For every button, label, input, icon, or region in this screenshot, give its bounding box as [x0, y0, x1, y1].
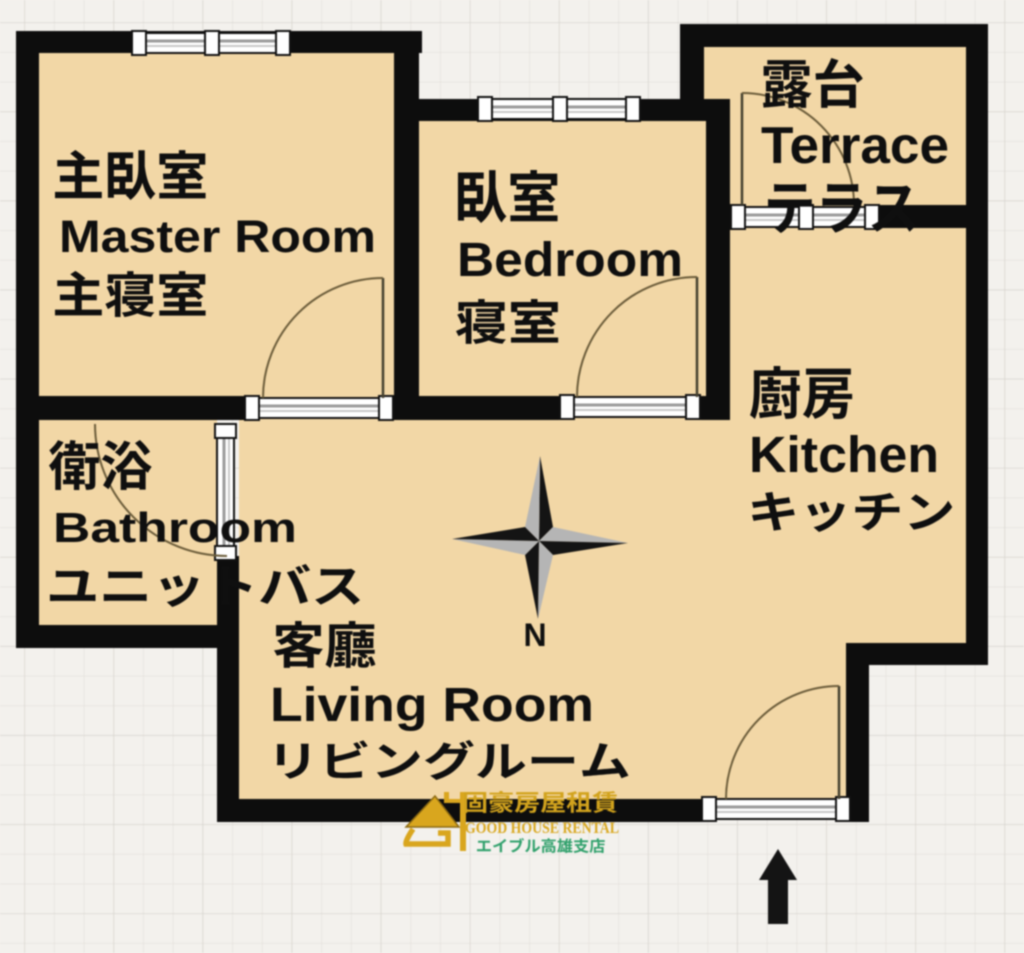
- svg-text:N: N: [523, 617, 546, 653]
- svg-text:Bedroom: Bedroom: [457, 234, 683, 287]
- svg-text:Kitchen: Kitchen: [749, 426, 939, 483]
- svg-text:Master Room: Master Room: [59, 211, 376, 262]
- svg-text:Bathroom: Bathroom: [53, 504, 297, 551]
- svg-text:GOOD HOUSE RENTAL: GOOD HOUSE RENTAL: [465, 820, 619, 837]
- svg-text:Living Room: Living Room: [270, 679, 594, 732]
- svg-text:Terrace: Terrace: [761, 117, 949, 175]
